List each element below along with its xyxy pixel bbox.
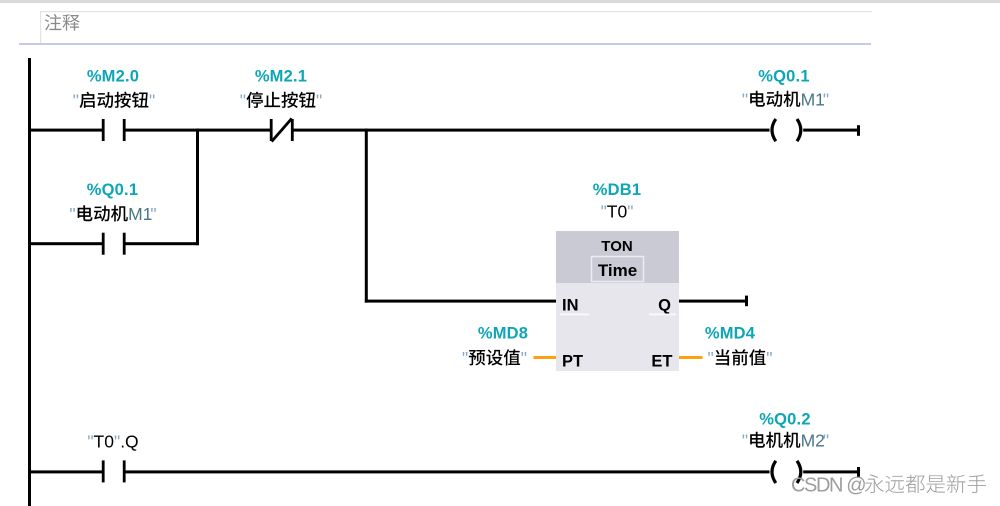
svg-text:": " — [73, 91, 79, 111]
svg-text:": " — [823, 431, 829, 451]
svg-text:PT: PT — [562, 353, 583, 371]
svg-text:IN: IN — [562, 297, 579, 315]
svg-text:": " — [462, 348, 468, 368]
svg-text:.Q: .Q — [120, 432, 138, 452]
svg-text:": " — [150, 204, 156, 224]
svg-text:": " — [823, 90, 829, 110]
svg-text:": " — [69, 204, 75, 224]
svg-text:": " — [742, 431, 748, 451]
svg-text:Time: Time — [598, 261, 637, 280]
svg-text:": " — [766, 348, 772, 368]
svg-text:%Q0.1: %Q0.1 — [758, 68, 809, 86]
svg-text:M1: M1 — [128, 204, 152, 224]
svg-text:T0: T0 — [94, 432, 115, 452]
svg-text:": " — [708, 348, 714, 368]
svg-text:%M2.1: %M2.1 — [255, 68, 307, 86]
svg-text:TON: TON — [601, 238, 632, 255]
svg-text:T0: T0 — [607, 202, 628, 222]
svg-text:": " — [149, 91, 155, 111]
svg-text:": " — [240, 91, 246, 111]
svg-text:%Q0.1: %Q0.1 — [87, 181, 138, 199]
svg-text:%Q0.2: %Q0.2 — [759, 411, 810, 429]
svg-text:": " — [742, 90, 748, 110]
svg-text:M2: M2 — [801, 431, 825, 451]
svg-text:Q: Q — [658, 297, 671, 315]
svg-text:": " — [521, 348, 527, 368]
svg-text:": " — [316, 91, 322, 111]
svg-text:CSDN @: CSDN @ — [791, 475, 865, 497]
svg-text:%MD8: %MD8 — [478, 325, 528, 343]
svg-text:%MD4: %MD4 — [705, 325, 756, 343]
svg-text:%DB1: %DB1 — [593, 181, 641, 199]
svg-text:ET: ET — [651, 353, 672, 371]
svg-text:": " — [627, 202, 633, 222]
svg-text:M1: M1 — [801, 90, 825, 110]
svg-text:%M2.0: %M2.0 — [87, 68, 139, 86]
